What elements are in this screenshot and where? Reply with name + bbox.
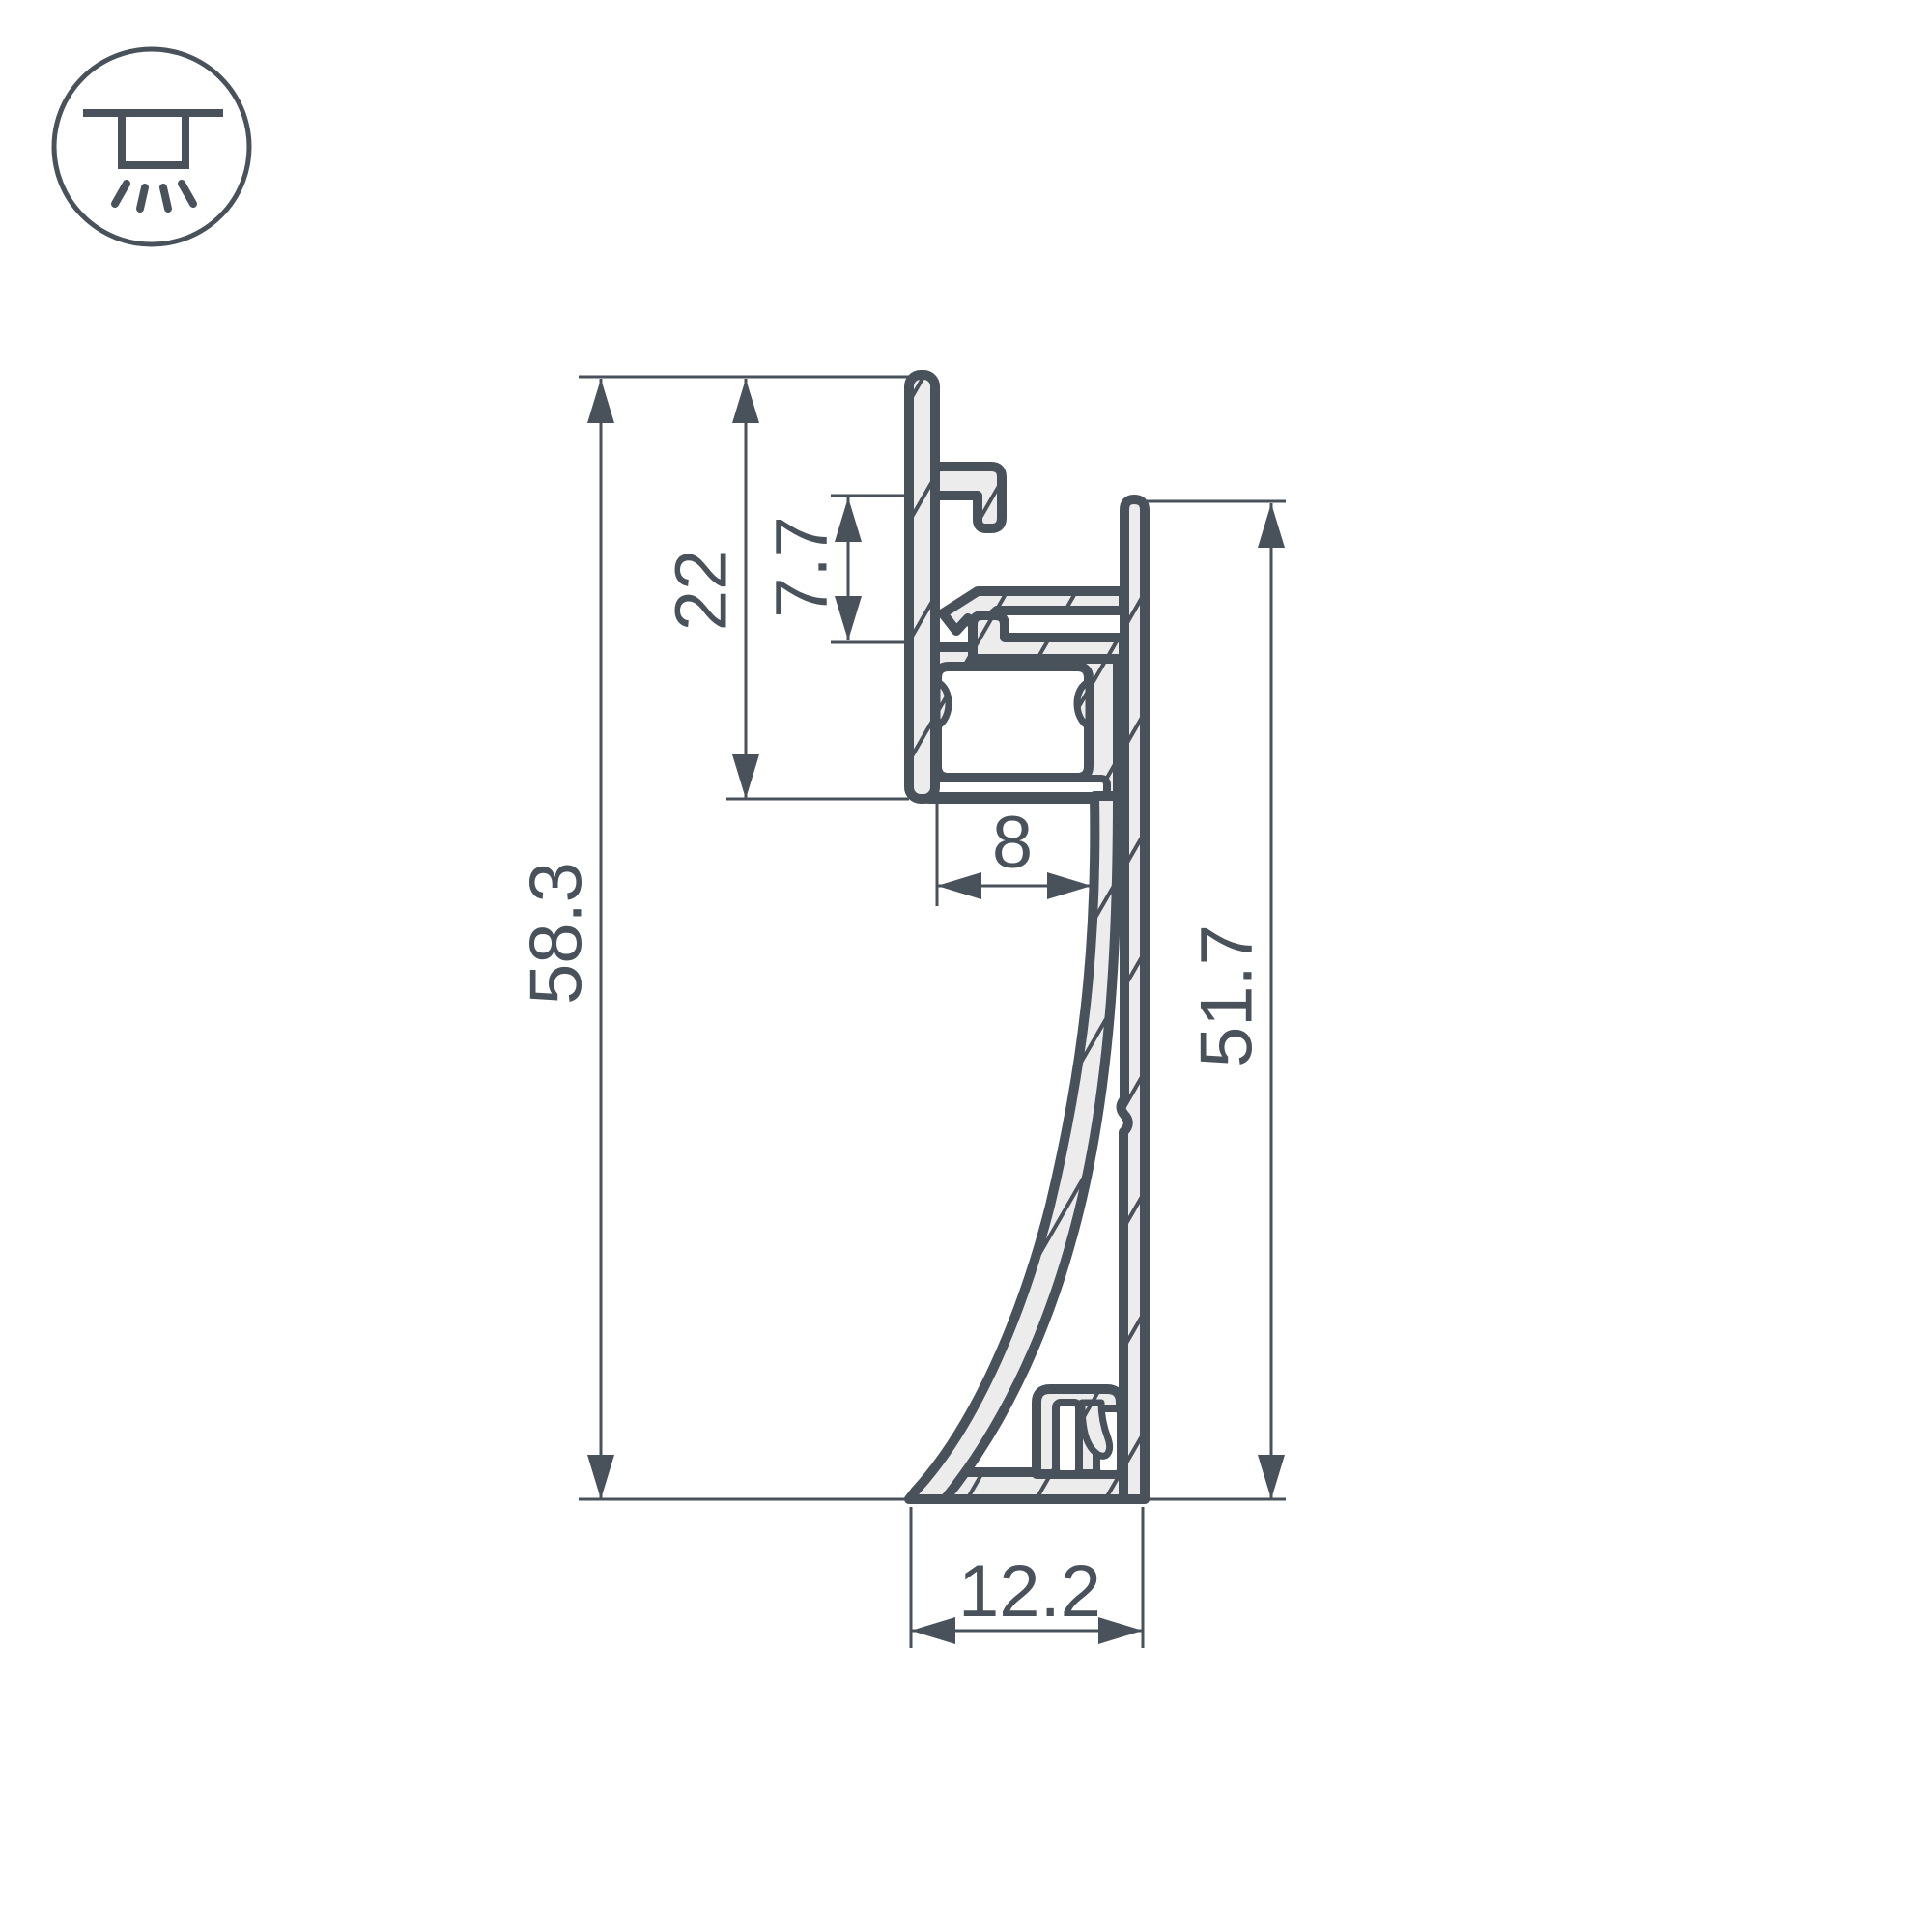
technical-drawing: 58.3 22 7.7 8 51.7 — [0, 0, 1932, 1932]
spring-tab-right — [1077, 682, 1089, 726]
arrow-up-icon — [1258, 503, 1285, 548]
dimension-label-base-width: 12.2 — [958, 1550, 1101, 1633]
light-rays — [115, 184, 193, 209]
channel-top-plate — [973, 615, 1123, 659]
dimension-label-wall-height: 22 — [661, 550, 743, 632]
icon-circle — [54, 49, 249, 244]
dimension-label-overall-height: 58.3 — [516, 862, 598, 1005]
snap-slot — [1056, 1403, 1079, 1474]
arrow-down-icon — [732, 754, 759, 799]
dimension-overall-height: 58.3 — [516, 379, 615, 1499]
dimension-front-height: 51.7 — [1186, 503, 1286, 1499]
dimension-label-front-height: 51.7 — [1186, 924, 1268, 1067]
dimension-label-slot-depth: 7.7 — [761, 516, 843, 618]
mounting-hook — [935, 467, 1002, 528]
arrow-down-icon — [1258, 1455, 1285, 1499]
right-wall — [1122, 499, 1146, 1499]
back-wall — [909, 375, 935, 799]
arrow-right-icon — [1098, 1617, 1143, 1644]
dimension-base-width: 12.2 — [911, 1550, 1143, 1644]
arrow-right-icon — [1047, 872, 1092, 899]
dimension-slot-depth: 7.7 — [761, 497, 863, 640]
arrow-left-icon — [937, 872, 981, 899]
arrow-down-icon — [587, 1455, 614, 1499]
light-box — [122, 113, 185, 165]
profile-drawing-svg: 58.3 22 7.7 8 51.7 — [0, 0, 1932, 1932]
arrow-left-icon — [911, 1617, 955, 1644]
dimension-wall-height: 22 — [661, 379, 760, 799]
dimension-label-channel-width: 8 — [992, 802, 1033, 884]
dimension-channel-width: 8 — [937, 802, 1092, 899]
diffuser-ledge — [918, 779, 1107, 796]
arrow-up-icon — [732, 379, 759, 423]
arrow-up-icon — [587, 379, 614, 423]
profile-cross-section — [909, 375, 1145, 1499]
recessed-ceiling-light-icon — [54, 49, 249, 244]
